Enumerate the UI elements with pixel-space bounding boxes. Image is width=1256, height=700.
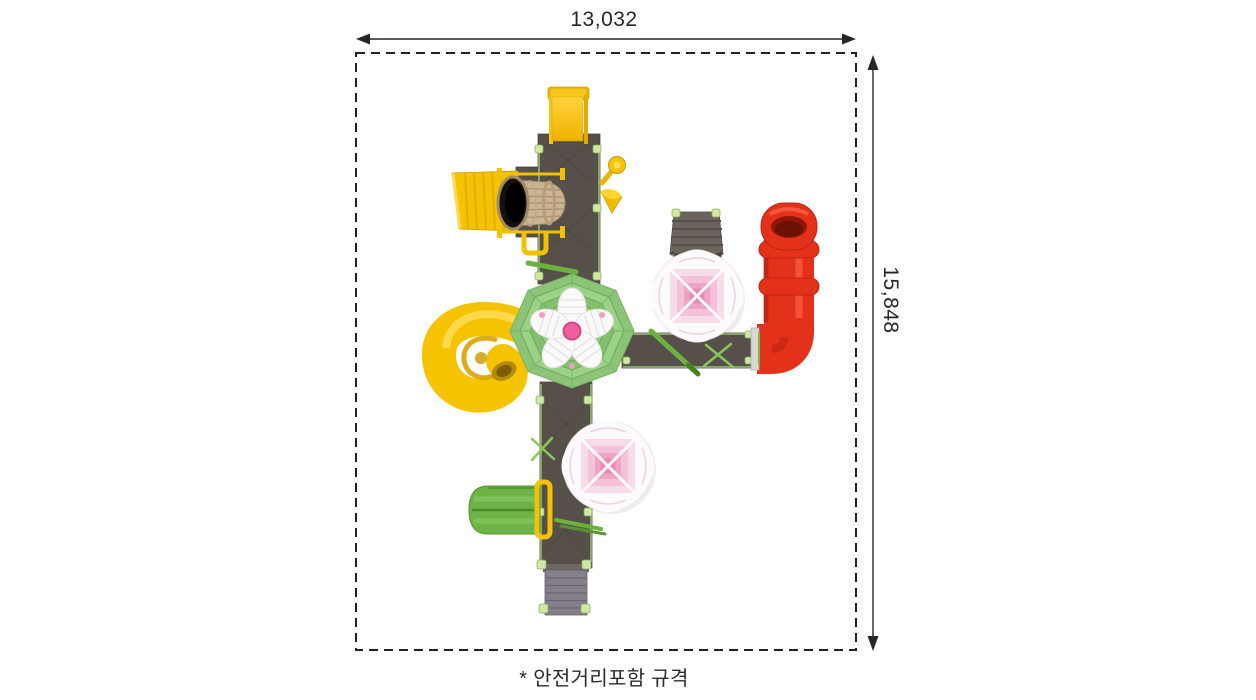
yellow-spiral-tube-slide <box>439 314 520 395</box>
arrow-right-icon <box>842 34 856 45</box>
green-double-slide <box>469 482 550 537</box>
plan-view-drawing <box>0 0 1256 700</box>
arrow-left-icon <box>356 34 370 45</box>
playground-spec-diagram: 13,032 15,848 * 안전거리포함 규격 <box>0 0 1256 700</box>
octagon-flower-roof <box>510 274 634 388</box>
barrel-crawl-tunnel <box>498 177 565 229</box>
top-straight-slide <box>548 87 589 144</box>
height-dimension-label: 15,848 <box>876 240 904 360</box>
barrel-crawl-tunnel-assembly <box>452 168 565 253</box>
safety-distance-note: * 안전거리포함 규격 <box>429 662 779 691</box>
flower-center <box>564 323 581 340</box>
red-curved-tube-slide <box>751 203 819 370</box>
periscope <box>600 157 625 214</box>
arrow-down-icon <box>868 636 879 651</box>
arrow-up-icon <box>868 55 879 70</box>
width-dimension-label: 13,032 <box>484 8 724 32</box>
width-dimension <box>356 34 856 45</box>
